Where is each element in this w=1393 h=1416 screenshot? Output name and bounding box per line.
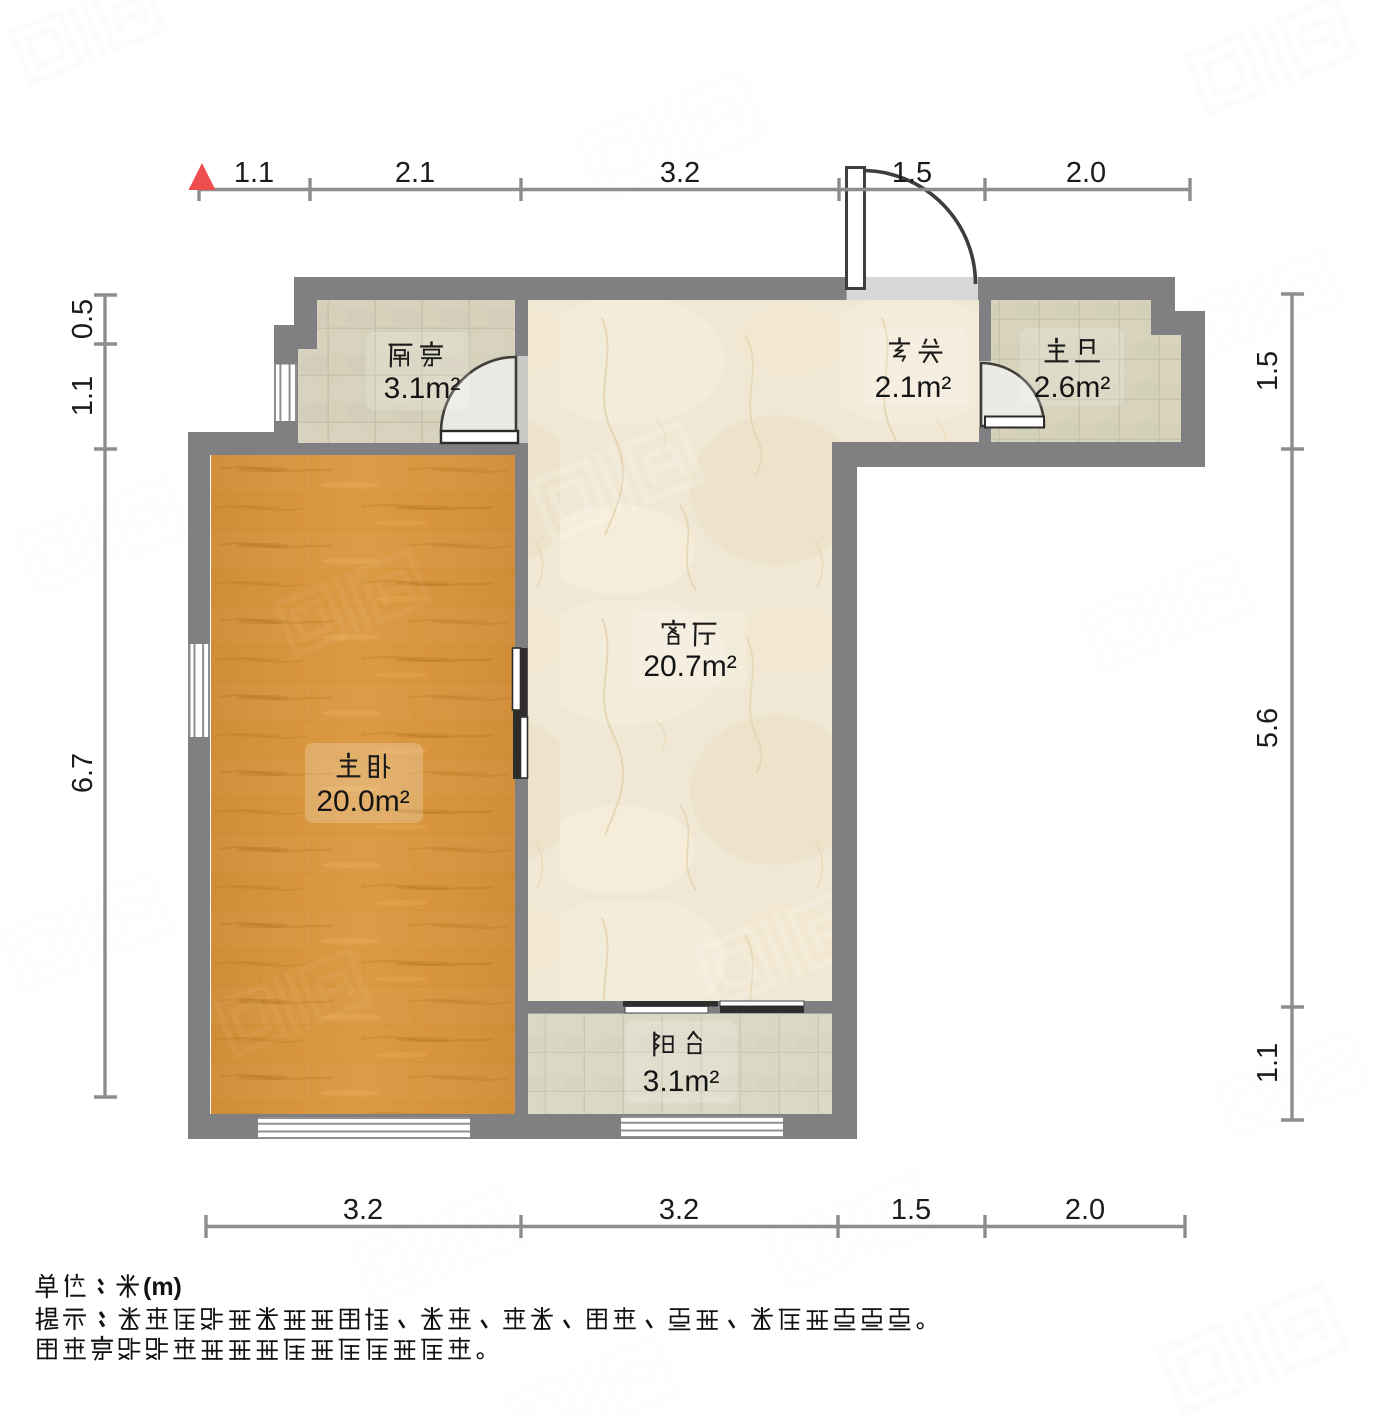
- svg-text:1.1: 1.1: [234, 157, 274, 189]
- svg-text:2.0: 2.0: [1066, 157, 1106, 189]
- svg-text:(m): (m): [143, 1273, 182, 1301]
- svg-text:2.1: 2.1: [395, 157, 435, 189]
- svg-text:20.0m²: 20.0m²: [316, 785, 409, 818]
- svg-text:3.2: 3.2: [660, 157, 700, 189]
- svg-text:1.1: 1.1: [67, 376, 99, 416]
- svg-text:1.1: 1.1: [1252, 1043, 1284, 1083]
- svg-text:1.5: 1.5: [891, 1194, 931, 1226]
- svg-text:3.2: 3.2: [343, 1194, 383, 1226]
- svg-text:2.1m²: 2.1m²: [875, 371, 952, 404]
- svg-text:0.5: 0.5: [67, 299, 99, 339]
- svg-text:2.6m²: 2.6m²: [1034, 371, 1111, 404]
- svg-text:3.1m²: 3.1m²: [384, 372, 461, 405]
- svg-text:5.6: 5.6: [1252, 708, 1284, 748]
- svg-text:1.5: 1.5: [1252, 351, 1284, 391]
- svg-text:3.1m²: 3.1m²: [643, 1065, 720, 1098]
- svg-text:6.7: 6.7: [67, 753, 99, 793]
- svg-text:1.5: 1.5: [892, 157, 932, 189]
- svg-text:3.2: 3.2: [659, 1194, 699, 1226]
- svg-text:2.0: 2.0: [1065, 1194, 1105, 1226]
- svg-text:20.7m²: 20.7m²: [643, 650, 736, 683]
